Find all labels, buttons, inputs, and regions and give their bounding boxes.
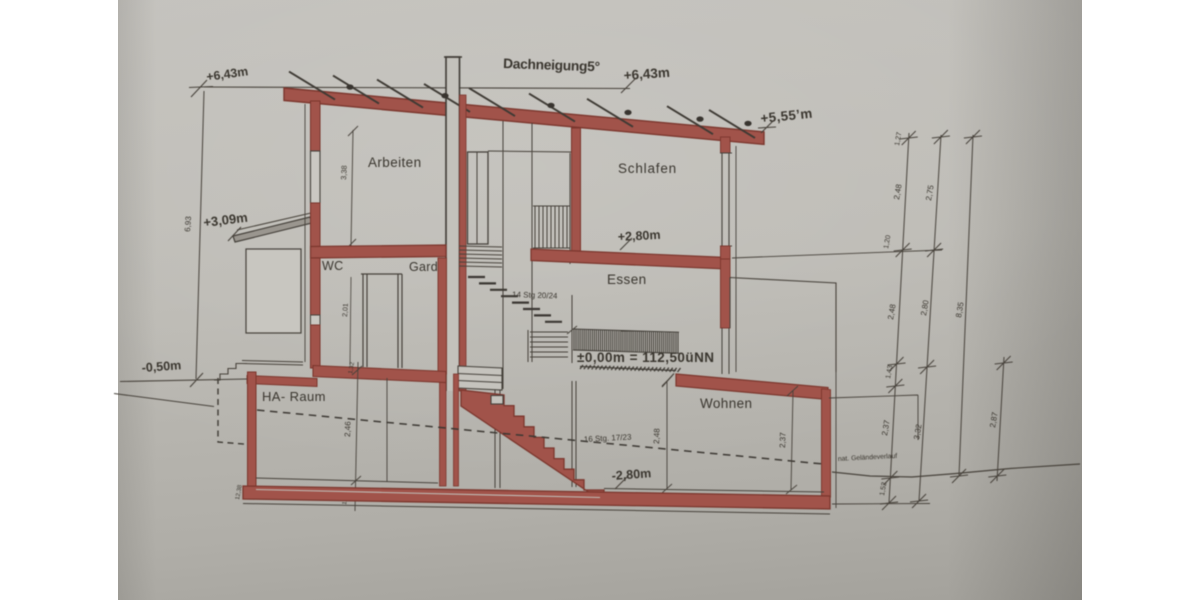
svg-text:Wohnen: Wohnen bbox=[700, 396, 752, 411]
svg-text:2,80: 2,80 bbox=[919, 299, 931, 316]
svg-text:2,75: 2,75 bbox=[924, 184, 936, 201]
svg-text:2,48: 2,48 bbox=[886, 303, 898, 320]
svg-text:+3,09m: +3,09m bbox=[203, 210, 249, 230]
svg-text:Essen: Essen bbox=[607, 272, 647, 287]
svg-text:Arbeiten: Arbeiten bbox=[368, 155, 421, 170]
svg-text:2,37: 2,37 bbox=[880, 419, 892, 436]
svg-text:-2,80m: -2,80m bbox=[611, 466, 651, 483]
svg-text:+6,43m: +6,43m bbox=[623, 65, 670, 83]
svg-text:HA- Raum: HA- Raum bbox=[262, 389, 326, 404]
svg-text:2,37: 2,37 bbox=[778, 432, 788, 448]
svg-text:±0,00m = 112,50üNN: ±0,00m = 112,50üNN bbox=[577, 350, 714, 365]
svg-text:Dachneigung5°: Dachneigung5° bbox=[503, 56, 600, 74]
svg-text:1,20: 1,20 bbox=[883, 235, 892, 250]
svg-text:14 Stg 20/24: 14 Stg 20/24 bbox=[512, 290, 558, 301]
svg-text:2,48: 2,48 bbox=[652, 428, 662, 444]
svg-text:+5,55’m: +5,55’m bbox=[760, 106, 814, 126]
svg-text:+2,80m: +2,80m bbox=[617, 228, 660, 244]
svg-text:1,43: 1,43 bbox=[885, 365, 894, 380]
svg-text:2,48: 2,48 bbox=[892, 183, 904, 200]
svg-text:3,38: 3,38 bbox=[339, 165, 349, 180]
svg-text:6,93: 6,93 bbox=[183, 215, 193, 232]
svg-text:Gard: Gard bbox=[409, 260, 438, 274]
svg-text:1,52: 1,52 bbox=[879, 482, 888, 497]
svg-text:+6,43m: +6,43m bbox=[205, 64, 249, 84]
svg-text:2,01: 2,01 bbox=[342, 303, 350, 317]
svg-text:Schlafen: Schlafen bbox=[618, 161, 677, 176]
svg-text:2,87: 2,87 bbox=[988, 411, 1000, 428]
svg-text:WC: WC bbox=[322, 259, 343, 273]
svg-text:nat. Geländeverlauf: nat. Geländeverlauf bbox=[838, 453, 898, 463]
svg-text:-0,50m: -0,50m bbox=[141, 358, 181, 375]
svg-text:8,35: 8,35 bbox=[954, 301, 966, 318]
svg-text:16 Stg. 17/23: 16 Stg. 17/23 bbox=[584, 432, 633, 444]
svg-text:2,46: 2,46 bbox=[343, 421, 353, 437]
